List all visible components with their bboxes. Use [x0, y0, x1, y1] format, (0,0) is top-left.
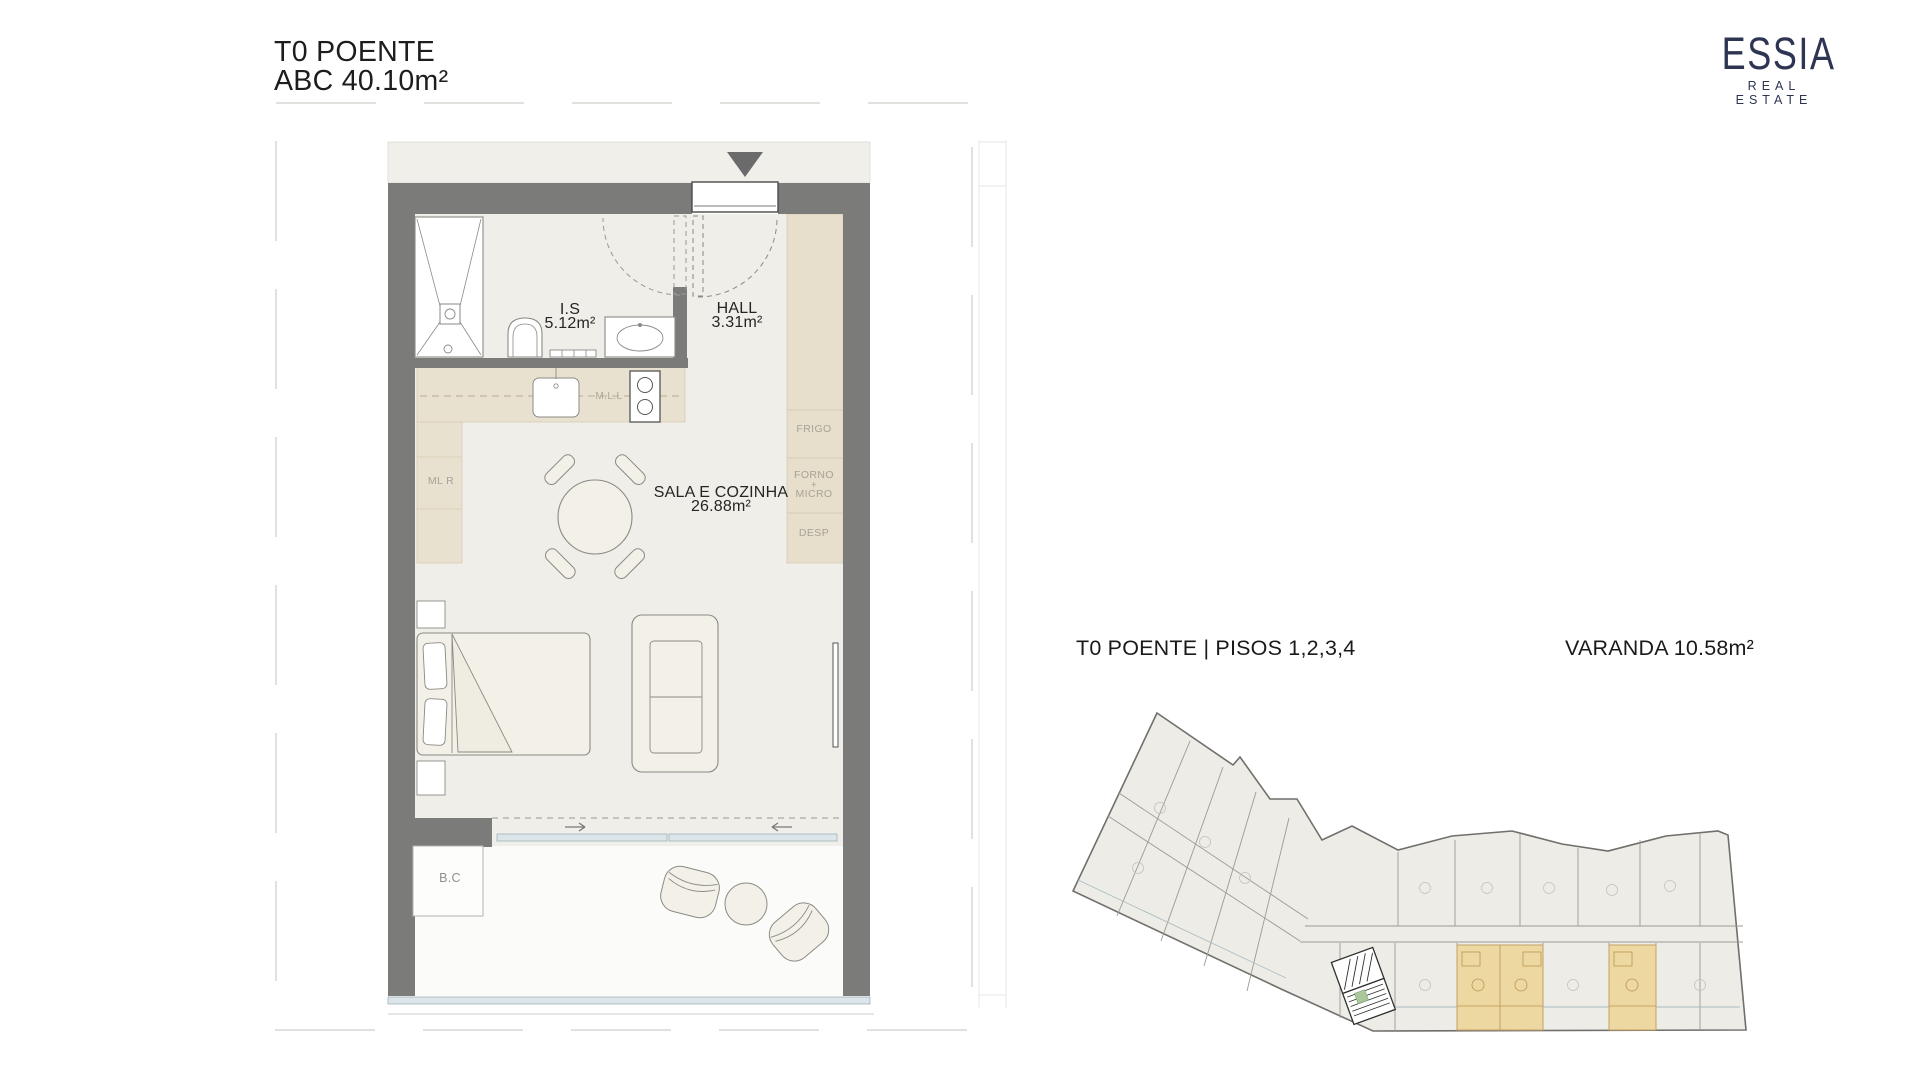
hob-icon [630, 371, 660, 422]
cabinet-label-mlr: ML R [428, 477, 454, 487]
towel-rail-icon [550, 350, 596, 357]
washbasin-icon [605, 317, 675, 357]
cabinet-label-mll: M.L.L [595, 391, 622, 402]
floor-plan-svg [0, 0, 1920, 1080]
tv-icon [833, 643, 838, 747]
page-title-line2: ABC 40.10m² [274, 67, 448, 96]
brand-logo: ESSIA REAL ESTATE [1709, 34, 1835, 107]
nightstand-icon-2 [417, 761, 445, 795]
keyplan-caption: T0 POENTE | PISOS 1,2,3,4 [1076, 636, 1355, 661]
unit-plan [388, 142, 874, 1014]
sofa-icon [632, 615, 718, 772]
exterior-walkway [388, 142, 870, 183]
balcony-table-icon [725, 883, 767, 925]
brand-logo-tagline: REAL ESTATE [1709, 79, 1835, 107]
cabinet-micro: MICRO [794, 490, 834, 500]
cabinet-label-forno-micro: FORNO + MICRO [794, 471, 834, 500]
room-is-area: 5.12m² [545, 317, 596, 331]
toilet-icon [508, 318, 542, 357]
key-plan [1073, 713, 1746, 1031]
room-hall-area: 3.31m² [712, 316, 763, 330]
page-title: T0 POENTE ABC 40.10m² [274, 38, 448, 96]
right-cabinet-column [787, 214, 843, 563]
varanda-label: VARANDA 10.58m² [1565, 636, 1754, 661]
room-label-hall: HALL 3.31m² [712, 302, 763, 330]
page: T0 POENTE ABC 40.10m² ESSIA REAL ESTATE … [0, 0, 1920, 1080]
cabinet-label-desp: DESP [799, 529, 829, 539]
room-sala-area: 26.88m² [654, 500, 788, 514]
shower-icon [415, 217, 483, 357]
neighbour-ghost-lines [979, 140, 1006, 1008]
balcony-label-bc: B.C [439, 871, 461, 885]
balcony-railing [388, 997, 874, 1014]
nightstand-icon [417, 601, 445, 628]
room-label-sala: SALA E COZINHA 26.88m² [654, 486, 788, 514]
left-cabinet-column [417, 422, 462, 563]
bed-icon [417, 633, 590, 755]
cabinet-label-frigo: FRIGO [796, 425, 831, 435]
brand-logo-text: ESSIA [1722, 34, 1823, 74]
room-label-is: I.S 5.12m² [545, 303, 596, 331]
page-title-line1: T0 POENTE [274, 38, 448, 67]
